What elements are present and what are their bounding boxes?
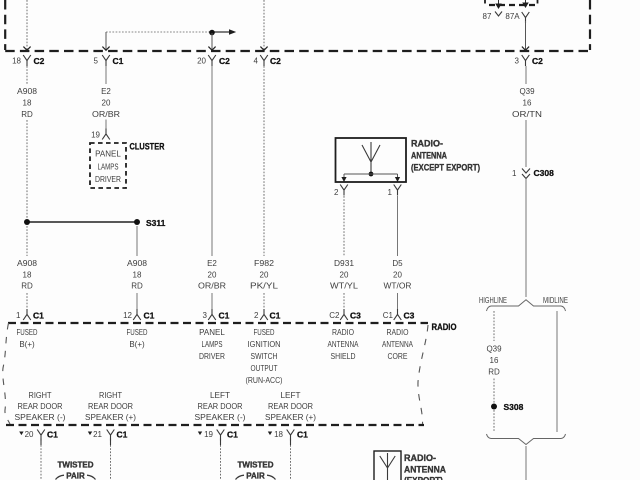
svg-text:20: 20 bbox=[260, 271, 269, 280]
svg-text:Q39: Q39 bbox=[519, 87, 535, 96]
svg-text:SPEAKER (-): SPEAKER (-) bbox=[15, 413, 66, 422]
svg-text:ANTENNA: ANTENNA bbox=[411, 151, 447, 161]
svg-text:TWISTED: TWISTED bbox=[238, 461, 274, 470]
svg-text:(EXPORT): (EXPORT) bbox=[404, 476, 443, 480]
svg-text:SWITCH: SWITCH bbox=[251, 352, 278, 361]
svg-text:OR/TN: OR/TN bbox=[512, 110, 542, 119]
svg-text:21: 21 bbox=[93, 430, 102, 439]
svg-text:S308: S308 bbox=[504, 402, 524, 412]
svg-text:DRIVER: DRIVER bbox=[95, 175, 121, 184]
svg-text:RIGHT: RIGHT bbox=[29, 391, 52, 400]
svg-text:PANEL: PANEL bbox=[199, 328, 225, 337]
svg-text:3: 3 bbox=[515, 57, 520, 66]
svg-text:20: 20 bbox=[340, 271, 349, 280]
svg-text:D931: D931 bbox=[334, 259, 355, 268]
svg-text:REAR DOOR: REAR DOOR bbox=[198, 402, 243, 411]
svg-text:1: 1 bbox=[512, 169, 517, 178]
svg-text:OR/BR: OR/BR bbox=[92, 110, 120, 119]
svg-text:C1: C1 bbox=[113, 56, 124, 66]
svg-text:1: 1 bbox=[16, 311, 21, 320]
svg-text:FUSED: FUSED bbox=[254, 328, 275, 337]
svg-text:16: 16 bbox=[490, 356, 499, 365]
svg-text:LAMPS: LAMPS bbox=[202, 340, 223, 349]
svg-text:2: 2 bbox=[334, 188, 339, 197]
svg-text:SPEAKER (+): SPEAKER (+) bbox=[85, 413, 136, 422]
svg-text:E2: E2 bbox=[207, 259, 217, 268]
svg-text:18: 18 bbox=[274, 430, 283, 439]
svg-text:C1: C1 bbox=[117, 430, 128, 440]
svg-text:ANTENNA: ANTENNA bbox=[328, 340, 360, 349]
svg-text:RADIO: RADIO bbox=[332, 328, 354, 337]
svg-text:C1: C1 bbox=[383, 311, 394, 320]
svg-text:C1: C1 bbox=[219, 311, 230, 321]
svg-text:C2: C2 bbox=[219, 56, 230, 66]
svg-text:RD: RD bbox=[131, 282, 143, 291]
svg-text:RD: RD bbox=[488, 368, 500, 377]
svg-text:OUTPUT: OUTPUT bbox=[251, 364, 278, 373]
svg-text:MIDLINE: MIDLINE bbox=[543, 296, 568, 305]
svg-text:IGNITION: IGNITION bbox=[248, 340, 281, 349]
svg-text:RADIO-: RADIO- bbox=[404, 453, 436, 463]
svg-text:E2: E2 bbox=[101, 87, 111, 96]
svg-text:C2: C2 bbox=[34, 56, 45, 66]
svg-text:REAR DOOR: REAR DOOR bbox=[18, 402, 63, 411]
svg-text:SHIELD: SHIELD bbox=[331, 352, 356, 361]
svg-text:OR/BR: OR/BR bbox=[198, 282, 226, 291]
svg-text:WT/YL: WT/YL bbox=[330, 282, 359, 291]
svg-text:RIGHT: RIGHT bbox=[99, 391, 122, 400]
svg-text:RADIO: RADIO bbox=[387, 328, 409, 337]
svg-text:Q39: Q39 bbox=[486, 345, 502, 354]
svg-text:18: 18 bbox=[12, 57, 21, 66]
svg-text:RD: RD bbox=[21, 110, 33, 119]
svg-text:REAR DOOR: REAR DOOR bbox=[88, 402, 133, 411]
svg-text:18: 18 bbox=[133, 271, 142, 280]
svg-text:4: 4 bbox=[254, 57, 259, 66]
svg-text:LAMPS: LAMPS bbox=[98, 163, 119, 172]
svg-text:19: 19 bbox=[91, 131, 100, 140]
svg-text:S311: S311 bbox=[146, 218, 166, 228]
svg-text:LEFT: LEFT bbox=[281, 391, 301, 400]
svg-text:REAR DOOR: REAR DOOR bbox=[268, 402, 313, 411]
svg-text:C2: C2 bbox=[329, 311, 340, 320]
svg-text:(EXCEPT EXPORT): (EXCEPT EXPORT) bbox=[411, 163, 480, 173]
svg-text:WT/OR: WT/OR bbox=[384, 282, 412, 291]
svg-text:20: 20 bbox=[102, 99, 111, 108]
svg-text:A908: A908 bbox=[17, 87, 38, 96]
svg-text:SPEAKER (-): SPEAKER (-) bbox=[195, 413, 246, 422]
svg-text:RD: RD bbox=[21, 282, 33, 291]
svg-text:20: 20 bbox=[208, 271, 217, 280]
svg-text:DRIVER: DRIVER bbox=[199, 352, 225, 361]
svg-text:CORE: CORE bbox=[388, 352, 408, 361]
svg-text:18: 18 bbox=[23, 271, 32, 280]
svg-text:RADIO: RADIO bbox=[432, 322, 457, 332]
svg-text:C1: C1 bbox=[270, 311, 281, 321]
svg-text:ANTENNA: ANTENNA bbox=[404, 465, 446, 475]
svg-text:FUSED: FUSED bbox=[127, 328, 148, 337]
svg-text:87A: 87A bbox=[505, 12, 520, 21]
svg-text:18: 18 bbox=[23, 99, 32, 108]
svg-text:C2: C2 bbox=[532, 56, 543, 66]
svg-text:20: 20 bbox=[393, 271, 402, 280]
svg-text:SPEAKER (+): SPEAKER (+) bbox=[265, 413, 316, 422]
svg-text:16: 16 bbox=[523, 99, 532, 108]
svg-text:A908: A908 bbox=[17, 259, 38, 268]
svg-text:1: 1 bbox=[388, 188, 393, 197]
svg-text:B(+): B(+) bbox=[129, 340, 145, 349]
svg-text:LEFT: LEFT bbox=[210, 391, 230, 400]
svg-text:HIGHLINE: HIGHLINE bbox=[479, 296, 507, 305]
svg-text:87: 87 bbox=[483, 12, 492, 21]
svg-text:(RUN-ACC): (RUN-ACC) bbox=[246, 376, 283, 385]
svg-text:PAIR: PAIR bbox=[246, 472, 265, 480]
svg-text:C1: C1 bbox=[144, 311, 155, 321]
svg-text:ANTENNA: ANTENNA bbox=[382, 340, 414, 349]
svg-text:C3: C3 bbox=[404, 311, 415, 321]
svg-text:RADIO-: RADIO- bbox=[411, 139, 443, 149]
svg-text:PAIR: PAIR bbox=[66, 472, 85, 480]
svg-text:D5: D5 bbox=[392, 259, 403, 268]
svg-text:12: 12 bbox=[123, 311, 132, 320]
svg-text:C1: C1 bbox=[33, 311, 44, 321]
svg-text:C1: C1 bbox=[47, 430, 58, 440]
svg-text:CLUSTER: CLUSTER bbox=[130, 142, 165, 152]
svg-text:C308: C308 bbox=[534, 168, 555, 178]
svg-text:5: 5 bbox=[94, 57, 99, 66]
svg-text:F982: F982 bbox=[254, 259, 275, 268]
svg-text:20: 20 bbox=[197, 57, 206, 66]
svg-text:PANEL: PANEL bbox=[95, 150, 121, 159]
svg-text:A908: A908 bbox=[127, 259, 148, 268]
svg-text:FUSED: FUSED bbox=[17, 328, 38, 337]
svg-text:C3: C3 bbox=[350, 311, 361, 321]
svg-text:3: 3 bbox=[203, 311, 208, 320]
svg-text:C2: C2 bbox=[270, 56, 281, 66]
svg-text:C1: C1 bbox=[297, 430, 308, 440]
svg-text:19: 19 bbox=[204, 430, 213, 439]
svg-text:TWISTED: TWISTED bbox=[58, 461, 94, 470]
svg-text:C1: C1 bbox=[227, 430, 238, 440]
svg-text:2: 2 bbox=[254, 311, 259, 320]
svg-text:PK/YL: PK/YL bbox=[250, 282, 279, 291]
svg-text:20: 20 bbox=[25, 430, 34, 439]
svg-text:B(+): B(+) bbox=[19, 340, 35, 349]
